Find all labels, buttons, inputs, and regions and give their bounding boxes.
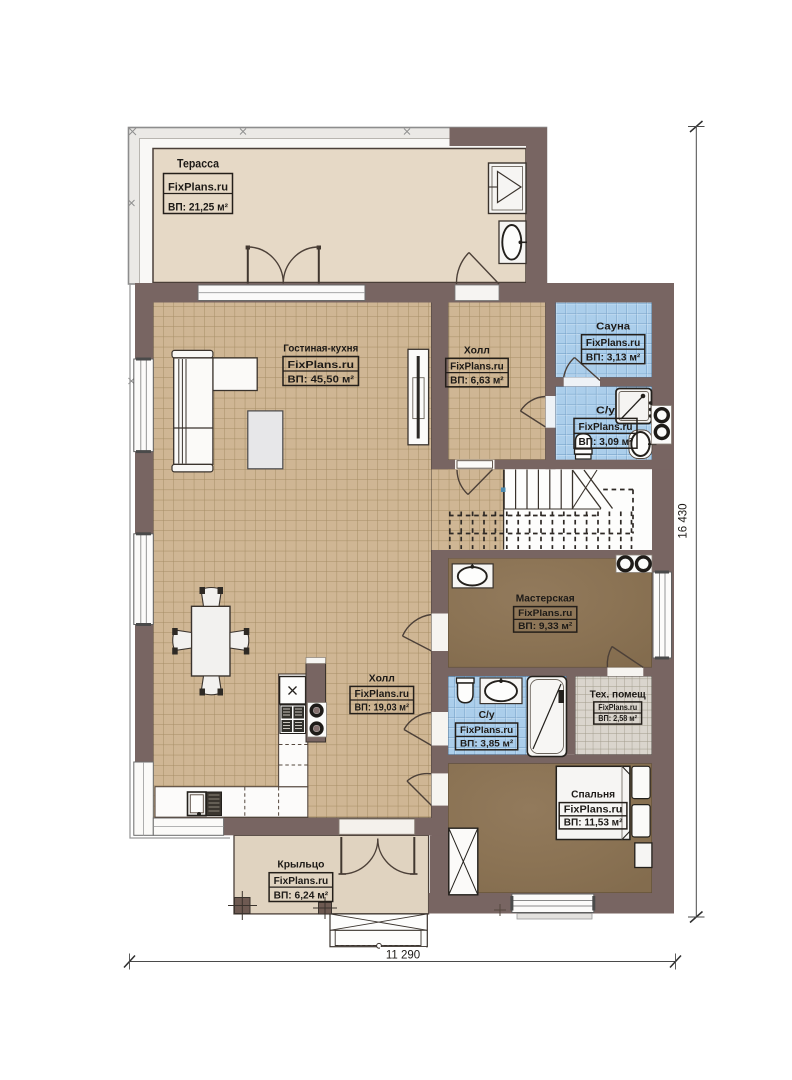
svg-text:ВП: 6,63 м²: ВП: 6,63 м² (450, 376, 504, 387)
svg-text:FixPlans.ru: FixPlans.ru (274, 876, 329, 887)
svg-text:FixPlans.ru: FixPlans.ru (564, 805, 623, 816)
svg-text:11 290: 11 290 (386, 950, 420, 962)
svg-text:ВП: 45,50 м²: ВП: 45,50 м² (288, 374, 355, 385)
svg-text:Мастерская: Мастерская (516, 593, 575, 605)
svg-text:ВП: 21,25 м²: ВП: 21,25 м² (168, 201, 228, 213)
svg-text:ВП: 6,24 м²: ВП: 6,24 м² (274, 890, 329, 901)
svg-text:FixPlans.ru: FixPlans.ru (579, 422, 633, 433)
svg-text:Сауна: Сауна (596, 321, 630, 333)
svg-text:Терасса: Терасса (177, 157, 219, 171)
svg-text:ВП: 9,33 м²: ВП: 9,33 м² (518, 621, 572, 631)
svg-text:FixPlans.ru: FixPlans.ru (288, 360, 355, 371)
svg-text:FixPlans.ru: FixPlans.ru (168, 181, 228, 193)
svg-text:FixPlans.ru: FixPlans.ru (460, 725, 513, 735)
svg-text:ВП: 19,03 м²: ВП: 19,03 м² (355, 702, 410, 713)
svg-text:FixPlans.ru: FixPlans.ru (518, 608, 572, 618)
svg-text:16 430: 16 430 (678, 503, 690, 538)
svg-text:Тех. помещ: Тех. помещ (590, 689, 647, 700)
svg-text:FixPlans.ru: FixPlans.ru (598, 703, 637, 712)
svg-text:С/у: С/у (479, 710, 495, 721)
svg-text:Гостиная-кухня: Гостиная-кухня (283, 343, 358, 355)
svg-text:FixPlans.ru: FixPlans.ru (355, 689, 410, 700)
svg-text:Холл: Холл (464, 344, 490, 356)
svg-text:ВП: 11,53 м²: ВП: 11,53 м² (564, 818, 623, 829)
svg-text:ВП: 3,09 м²: ВП: 3,09 м² (579, 437, 634, 448)
svg-text:ВП: 3,13 м²: ВП: 3,13 м² (586, 353, 641, 364)
svg-text:Холл: Холл (369, 672, 395, 684)
svg-text:Спальня: Спальня (571, 789, 615, 801)
svg-text:FixPlans.ru: FixPlans.ru (450, 361, 504, 372)
svg-text:ВП: 3,85 м²: ВП: 3,85 м² (460, 739, 513, 749)
svg-text:ВП: 2,58 м²: ВП: 2,58 м² (598, 714, 637, 723)
svg-text:С/у: С/у (596, 404, 615, 416)
svg-text:Крыльцо: Крыльцо (277, 859, 324, 871)
svg-text:FixPlans.ru: FixPlans.ru (586, 338, 640, 349)
